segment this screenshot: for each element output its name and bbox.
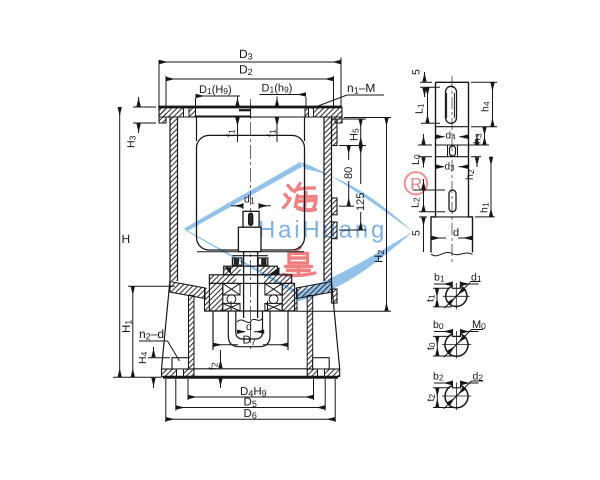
svg-text:t0: t0: [425, 342, 437, 350]
svg-text:n1–M: n1–M: [347, 81, 375, 96]
svg-text:5: 5: [411, 230, 423, 236]
svg-text:5: 5: [411, 69, 423, 75]
svg-text:d2: d2: [473, 371, 484, 383]
svg-text:D6: D6: [244, 408, 257, 420]
svg-text:n2–d: n2–d: [139, 327, 164, 342]
svg-text:t1: t1: [425, 294, 437, 302]
svg-text:d1: d1: [244, 194, 255, 206]
svg-text:b0: b0: [433, 319, 444, 331]
svg-text:f1: f1: [225, 129, 237, 137]
svg-text:D2: D2: [239, 63, 253, 78]
svg-text:80: 80: [343, 167, 355, 179]
svg-text:t2: t2: [425, 394, 437, 402]
svg-text:h3: h3: [472, 133, 484, 144]
svg-text:f2: f2: [208, 362, 220, 370]
svg-text:125: 125: [355, 193, 367, 211]
svg-text:d: d: [246, 321, 252, 333]
svg-text:D1(h9): D1(h9): [262, 83, 293, 95]
svg-text:H4: H4: [137, 351, 149, 364]
svg-text:f1: f1: [266, 129, 278, 137]
svg-text:H: H: [122, 232, 131, 246]
svg-text:H5: H5: [349, 128, 361, 141]
svg-text:L0: L0: [410, 154, 422, 165]
svg-text:d3: d3: [445, 162, 456, 173]
svg-text:b2: b2: [433, 371, 444, 383]
svg-text:H3: H3: [126, 135, 138, 148]
svg-text:D7: D7: [243, 335, 256, 347]
svg-text:b1: b1: [434, 272, 445, 284]
svg-text:d1: d1: [471, 272, 482, 284]
svg-text:D5: D5: [244, 397, 257, 409]
svg-text:M0: M0: [472, 319, 486, 331]
svg-text:d: d: [453, 227, 459, 239]
svg-text:h4: h4: [480, 101, 492, 112]
svg-text:H2: H2: [374, 250, 386, 263]
svg-text:HaiHuang: HaiHuang: [258, 217, 387, 244]
svg-text:R: R: [410, 176, 422, 194]
svg-text:L2: L2: [410, 197, 422, 208]
svg-text:D3: D3: [239, 47, 253, 62]
svg-text:L1: L1: [414, 103, 426, 114]
svg-text:d4: d4: [446, 131, 457, 142]
svg-text:h1: h1: [479, 202, 491, 213]
svg-text:D1(H9): D1(H9): [199, 84, 232, 96]
svg-text:H1: H1: [121, 320, 133, 333]
svg-text:h2: h2: [464, 169, 476, 180]
